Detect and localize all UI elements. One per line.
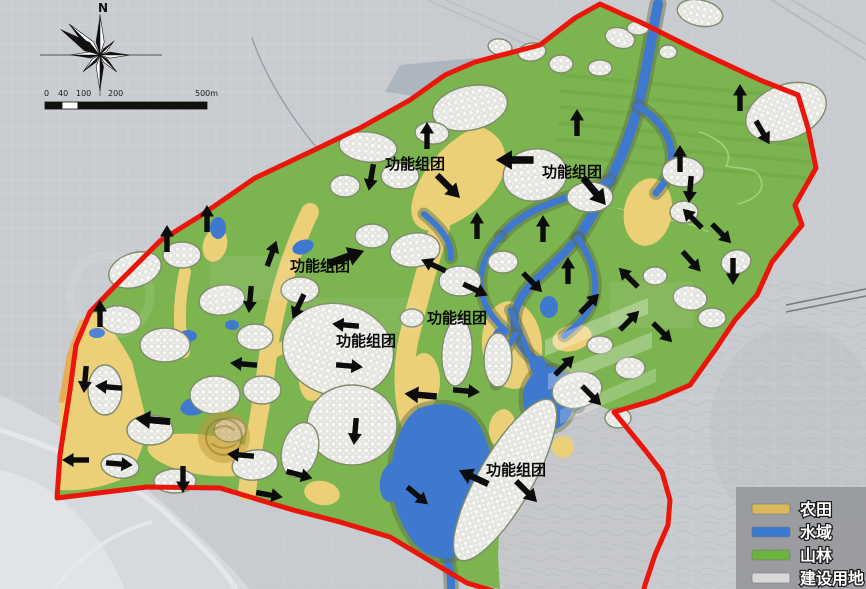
scale-bar-label: 40 bbox=[58, 89, 68, 98]
scale-bar-label: 100 bbox=[76, 89, 91, 98]
scale-bar-label: 500m bbox=[195, 89, 218, 98]
legend-swatch bbox=[752, 527, 790, 537]
legend-label: 农田 bbox=[799, 500, 832, 519]
site-plan-svg: 功能组团功能组团功能组团功能组团功能组团功能组团N040100200500m农田… bbox=[0, 0, 866, 589]
cluster-label: 功能组团 bbox=[336, 332, 396, 350]
legend-swatch bbox=[752, 550, 790, 560]
compass-north-label: N bbox=[98, 1, 108, 15]
scale-bar-label: 0 bbox=[44, 89, 49, 98]
legend-label: 水域 bbox=[800, 523, 832, 542]
cluster-label: 功能组团 bbox=[290, 257, 350, 275]
legend-swatch bbox=[752, 504, 790, 514]
cluster-label: 功能组团 bbox=[385, 155, 445, 173]
scale-bar-label: 200 bbox=[108, 89, 123, 98]
cluster-label: 功能组团 bbox=[486, 461, 546, 479]
site-plan-screenshot: 功能组团功能组团功能组团功能组团功能组团功能组团N040100200500m农田… bbox=[0, 0, 866, 589]
cluster-label: 功能组团 bbox=[427, 309, 487, 327]
legend-label: 建设用地 bbox=[800, 569, 864, 588]
legend-label: 山林 bbox=[800, 546, 832, 565]
legend-swatch bbox=[752, 573, 790, 583]
cluster-label: 功能组团 bbox=[542, 163, 602, 181]
